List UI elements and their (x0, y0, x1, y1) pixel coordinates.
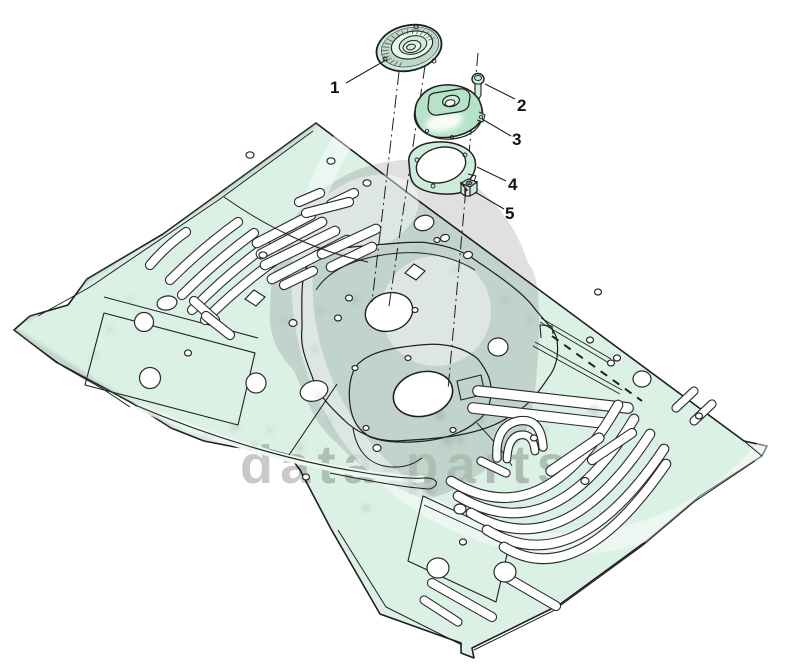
svg-text:1: 1 (330, 78, 339, 97)
svg-text:3: 3 (512, 130, 521, 149)
svg-text:5: 5 (505, 204, 514, 223)
svg-text:2: 2 (517, 96, 526, 115)
svg-text:4: 4 (508, 175, 518, 194)
